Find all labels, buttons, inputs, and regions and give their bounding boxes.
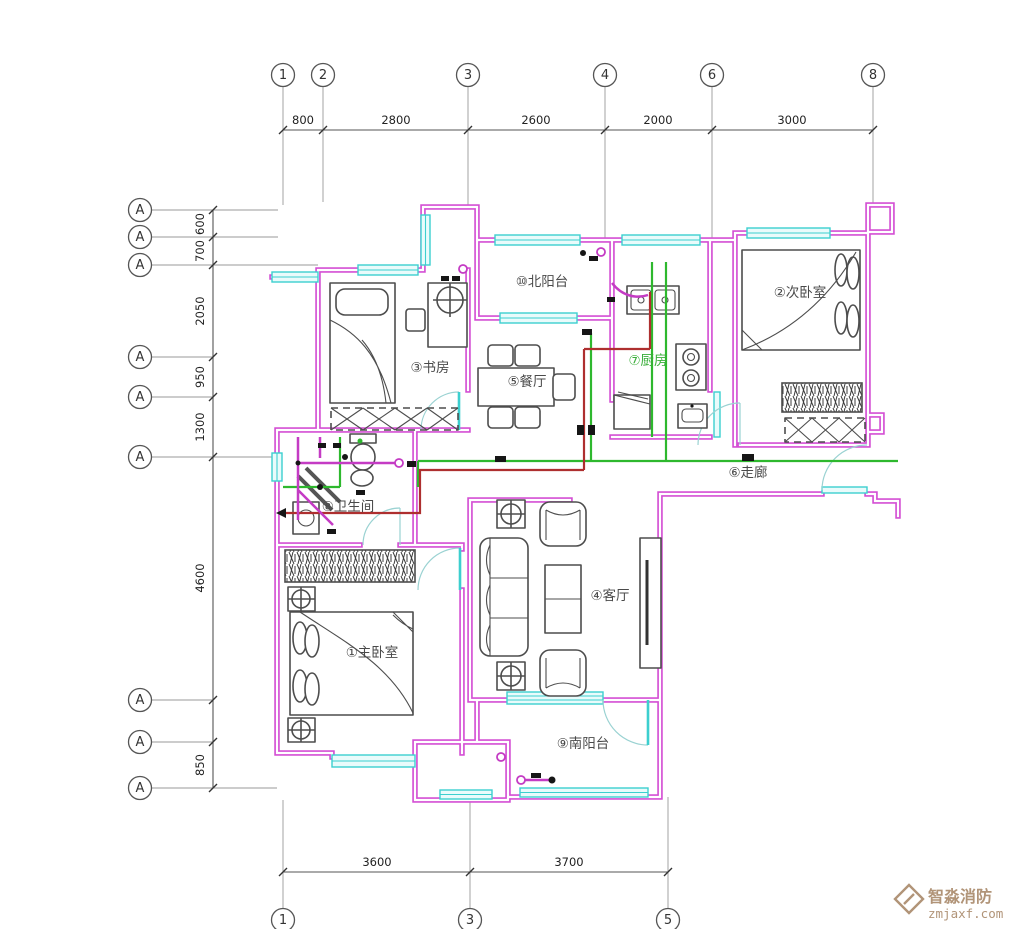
dim-bottom-3600: 3600 [362, 855, 391, 869]
study-pillow [336, 289, 388, 315]
coffee-table [545, 565, 581, 633]
watermark-site: zmjaxf.com [928, 906, 1003, 921]
bedroom2-shelf [782, 383, 862, 412]
floor-plan-page: 1 2 3 4 6 8 800 2800 2600 2000 3000 A A … [0, 0, 1019, 929]
lamp-symbol [517, 776, 525, 784]
kitchen-counter-sink [678, 404, 707, 428]
junction-dot [549, 777, 556, 784]
entry-door-arc [822, 445, 867, 490]
grid-bubble-2: 2 [312, 64, 335, 87]
junction-dot [580, 250, 586, 256]
grid-bubble-A5: A [129, 386, 152, 409]
room-label-study: ③书房 [410, 360, 449, 376]
grid-bubble-A8: A [129, 731, 152, 754]
dim-left-700: 700 [193, 240, 207, 262]
grid-bubble-A6: A [129, 446, 152, 469]
junction-dot [296, 461, 301, 466]
grid-bubble-A1: A [129, 199, 152, 222]
wire-device [327, 529, 336, 534]
junction-dot [317, 484, 323, 490]
armchair [540, 650, 586, 696]
grid-bubble-6: 6 [701, 64, 724, 87]
armchair [540, 502, 586, 546]
grid-bubble-4: 4 [594, 64, 617, 87]
kitchen-fridge [614, 392, 650, 429]
wire-device [588, 425, 595, 435]
grid-bubble-b1: 1 [272, 909, 295, 929]
dining-chair [553, 374, 575, 400]
grid-bubble-label: 5 [664, 913, 672, 928]
grid-bubble-label: A [136, 693, 145, 708]
wire-device [742, 454, 754, 461]
grid-bubble-label: 1 [279, 68, 287, 83]
grid-bubble-3: 3 [457, 64, 480, 87]
master-wardrobe [285, 550, 415, 582]
grid-bubble-label: 4 [601, 68, 609, 83]
grid-bubble-label: 3 [466, 913, 474, 928]
bedroom2-wardrobe [785, 418, 865, 442]
grid-bubble-1: 1 [272, 64, 295, 87]
grid-bubble-label: 2 [319, 68, 327, 83]
wire-device [452, 276, 460, 281]
dim-left-4600: 4600 [193, 563, 207, 592]
dim-left-950: 950 [193, 366, 207, 388]
dim-left-2050: 2050 [193, 296, 207, 325]
dim-left-1300: 1300 [193, 412, 207, 441]
wire-device [495, 456, 506, 462]
grid-bubble-A2: A [129, 226, 152, 249]
plant-box [497, 662, 525, 690]
study-chair [406, 309, 425, 331]
junction-dot-green [358, 439, 363, 444]
tv-cabinet [640, 538, 661, 668]
grid-bubble-8: 8 [862, 64, 885, 87]
kitchen-door-strip [714, 392, 720, 437]
room-label-bathroom: ⑧卫生间 [322, 499, 375, 515]
grid-bubble-b5: 5 [657, 909, 680, 929]
room-label-dining-room: ⑤餐厅 [507, 374, 546, 390]
grid-bubble-label: A [136, 203, 145, 218]
nightstand-lamp [288, 718, 315, 742]
lamp-symbol [395, 459, 403, 467]
balcony-door-arc [603, 700, 648, 745]
grid-bubble-label: A [136, 781, 145, 796]
grid-bubble-A4: A [129, 346, 152, 369]
sofa [480, 538, 528, 656]
lamp-symbol [459, 265, 467, 273]
dim-top-2600: 2600 [521, 113, 550, 127]
wire-device [441, 276, 449, 281]
lamp-symbol [497, 753, 505, 761]
grid-bubble-label: A [136, 735, 145, 750]
wire-device [589, 256, 598, 261]
grid-bubble-label: A [136, 450, 145, 465]
bathroom-sink [351, 470, 373, 486]
kitchen-stove [676, 344, 706, 390]
room-label-kitchen: ⑦厨房 [628, 353, 667, 369]
room-label-corridor: ⑥走廊 [728, 464, 767, 481]
dim-top-800: 800 [292, 113, 314, 127]
wire-device [407, 461, 416, 467]
grid-bottom: 1 3 5 3600 3700 [272, 797, 680, 929]
dim-top-2000: 2000 [643, 113, 672, 127]
watermark-logo-icon [895, 885, 923, 913]
room-label-living-room: ④客厅 [590, 587, 629, 604]
room-label-master-bedroom: ①主卧室 [346, 644, 399, 661]
grid-bubble-b3: 3 [459, 909, 482, 929]
dim-bottom-3700: 3700 [554, 855, 583, 869]
plant-box [497, 500, 525, 528]
watermark: 智淼消防 zmjaxf.com [895, 885, 1003, 921]
room-label-north-balcony: ⑩北阳台 [516, 274, 569, 290]
grid-bubble-label: 8 [869, 68, 877, 83]
wire-device [356, 490, 365, 495]
dining-chair [488, 345, 513, 366]
grid-bubble-label: 3 [464, 68, 472, 83]
wire-device [318, 443, 326, 448]
wire-device [582, 329, 592, 335]
dim-top-2800: 2800 [381, 113, 410, 127]
grid-top: 1 2 3 4 6 8 800 2800 2600 2000 3000 [272, 64, 885, 239]
grid-bubble-A3: A [129, 254, 152, 277]
grid-bubble-label: A [136, 258, 145, 273]
dining-chair [515, 407, 540, 428]
junction-dot [342, 454, 348, 460]
grid-bubble-label: A [136, 350, 145, 365]
grid-bubble-A9: A [129, 777, 152, 800]
dim-left-600: 600 [193, 213, 207, 235]
master-door-arc [418, 548, 460, 590]
grid-bubble-label: 1 [279, 913, 287, 928]
study-wardrobe [331, 408, 458, 430]
grid-bubble-label: A [136, 390, 145, 405]
wire-device [333, 443, 341, 448]
grid-bubble-A7: A [129, 689, 152, 712]
room-label-second-bedroom: ②次卧室 [774, 284, 827, 301]
wire-device [577, 425, 584, 435]
grid-bubble-label: 6 [708, 68, 716, 83]
grid-bubble-label: A [136, 230, 145, 245]
dim-top-3000: 3000 [777, 113, 806, 127]
nightstand-lamp [288, 587, 315, 611]
dim-left-850: 850 [193, 754, 207, 776]
entry-door-leaf [822, 487, 867, 493]
lamp-symbol [597, 248, 605, 256]
watermark-brand: 智淼消防 [928, 887, 992, 906]
toilet [350, 434, 376, 470]
dining-chair [515, 345, 540, 366]
floor-plan-drawing: 1 2 3 4 6 8 800 2800 2600 2000 3000 A A … [0, 0, 1019, 929]
dining-chair [488, 407, 513, 428]
wire-device [607, 297, 615, 302]
room-label-south-balcony: ⑨南阳台 [557, 736, 610, 752]
wire-device [531, 773, 541, 778]
